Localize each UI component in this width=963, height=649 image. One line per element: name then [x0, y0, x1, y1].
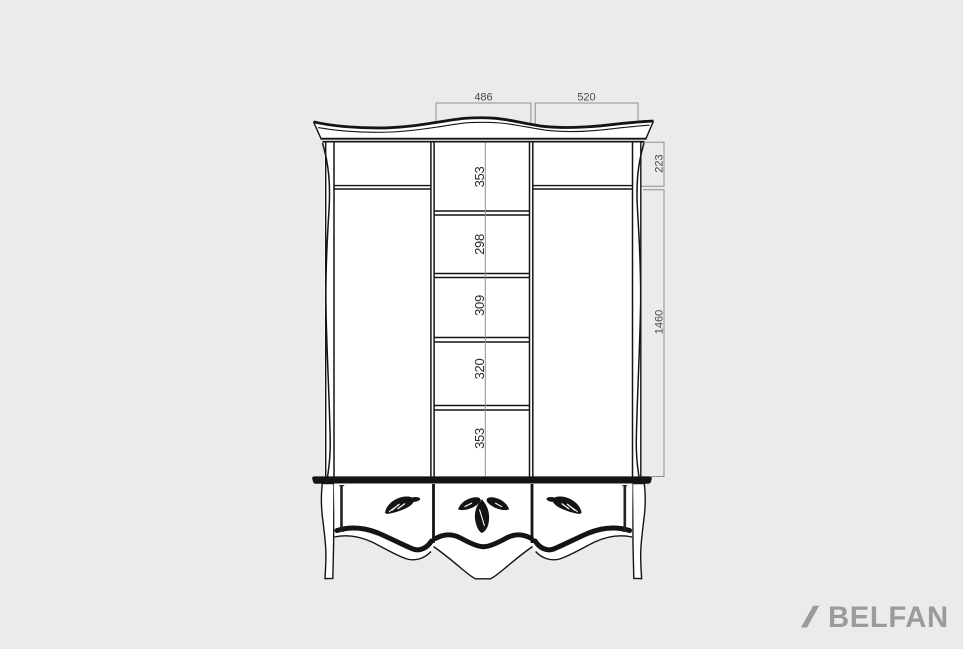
svg-text:BELFAN: BELFAN — [828, 601, 949, 634]
svg-text:298: 298 — [472, 234, 487, 255]
svg-text:309: 309 — [472, 295, 487, 316]
svg-text:353: 353 — [472, 428, 487, 449]
svg-text:223: 223 — [654, 154, 666, 172]
svg-text:486: 486 — [474, 92, 492, 104]
svg-text:520: 520 — [577, 92, 595, 104]
svg-text:320: 320 — [472, 359, 487, 380]
svg-text:1460: 1460 — [654, 310, 666, 334]
svg-text:353: 353 — [472, 167, 487, 188]
